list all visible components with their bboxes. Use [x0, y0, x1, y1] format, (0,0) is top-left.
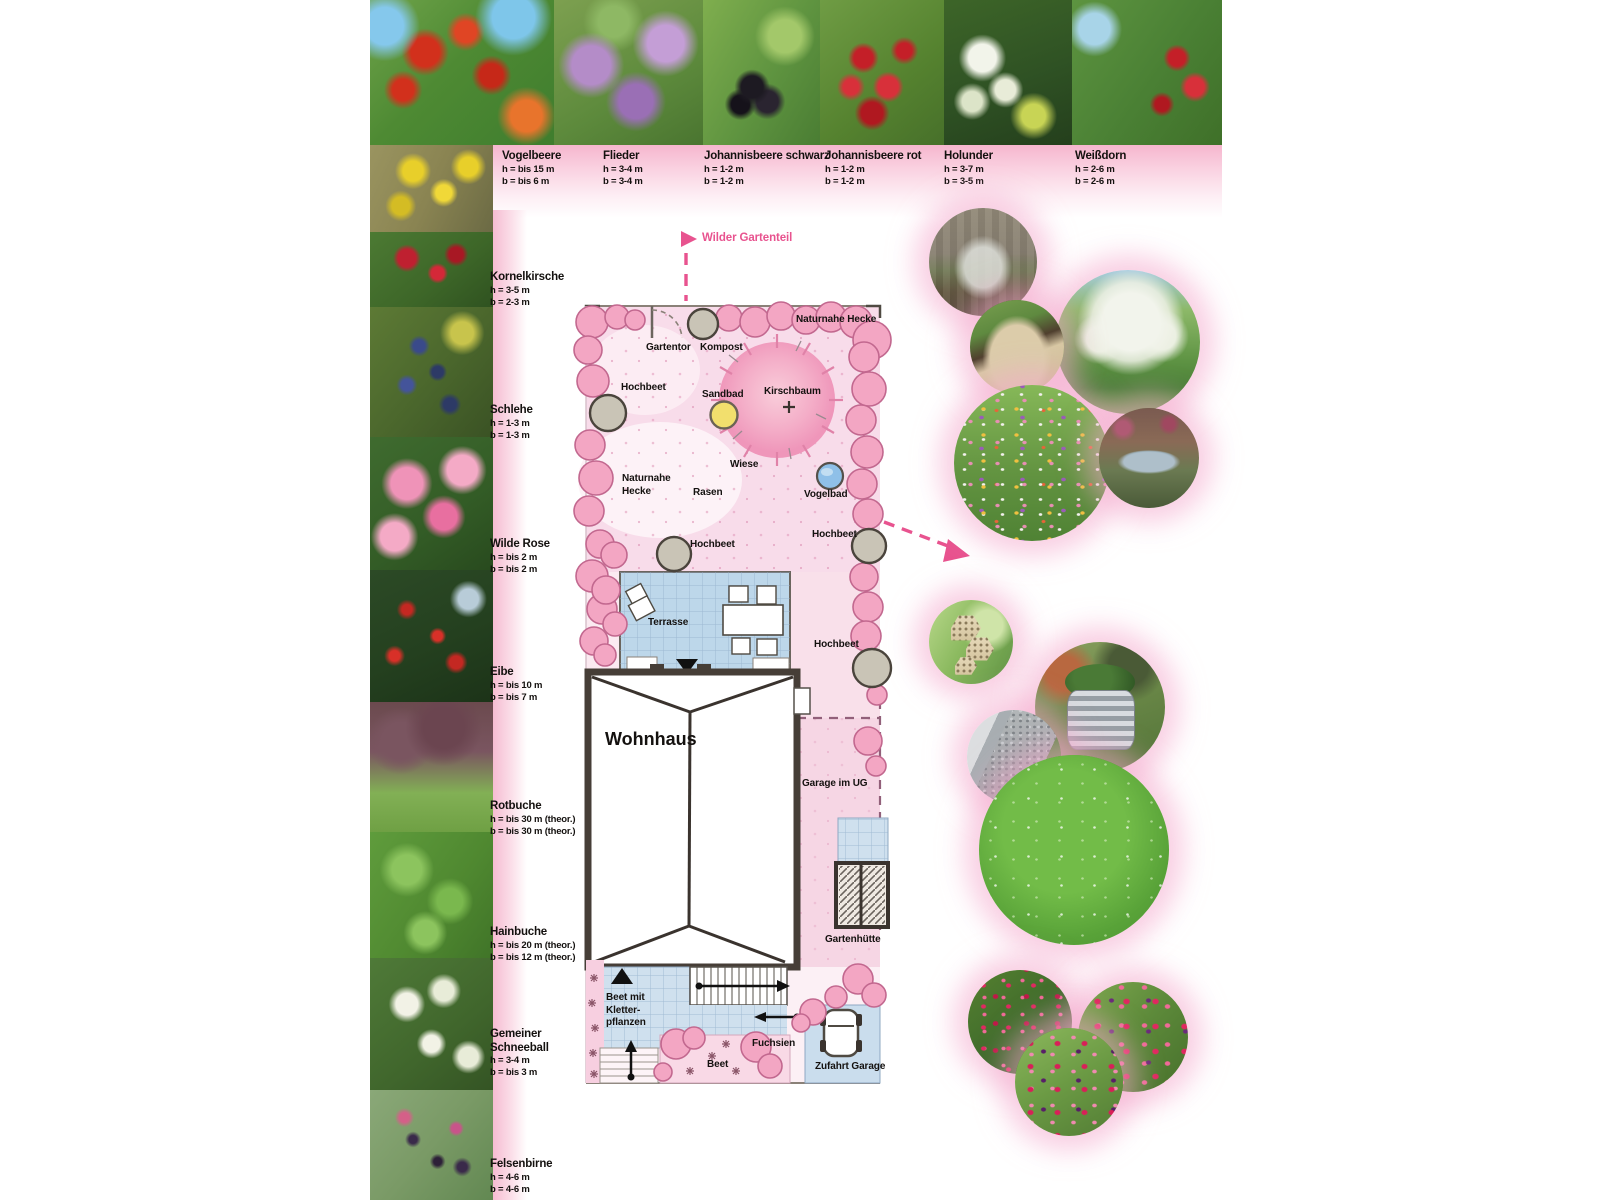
wild-garden-callout-label: Wilder Gartenteil — [702, 231, 792, 245]
photo-circle-blossoming-tree — [1056, 270, 1200, 414]
plan-label-hochbeet-1: Hochbeet — [621, 382, 666, 395]
plan-label-wiese: Wiese — [730, 459, 758, 472]
plan-label-naturnahe-hecke-left: Naturnahe Hecke — [622, 473, 671, 498]
stairs — [690, 967, 790, 1005]
plan-label-gartenhuette: Gartenhütte — [825, 934, 881, 947]
plan-label-kompost: Kompost — [700, 342, 743, 355]
sand-bath — [711, 402, 738, 429]
photo-circle-bird-bath — [1099, 408, 1199, 508]
plan-label-terrasse: Terrasse — [648, 617, 688, 630]
terrace — [620, 572, 790, 674]
plan-label-beet: Beet — [707, 1059, 728, 1072]
bird-bath — [817, 463, 843, 489]
plan-label-hochbeet-2: Hochbeet — [690, 539, 735, 552]
detail-callout-arrow — [884, 522, 970, 562]
wild-garden-arrow — [681, 231, 697, 301]
plan-label-sandbad: Sandbad — [702, 389, 744, 402]
photo-circle-lawn — [979, 755, 1169, 945]
plan-label-garage-im-ug: Garage im UG — [802, 778, 868, 791]
plan-label-beet-kletterpflanzen: Beet mit Kletter- pflanzen — [606, 992, 646, 1030]
garden-guide-page: { "top_row": { "items": [ {"name": "Voge… — [0, 0, 1600, 1200]
plan-label-hochbeet-4: Hochbeet — [814, 639, 859, 652]
garden-plan-drawing — [0, 0, 1600, 1200]
photo-circle-insect-hotel — [929, 600, 1013, 684]
photo-circle-fuchsia-detail — [1015, 1028, 1123, 1136]
plan-label-hochbeet-3: Hochbeet — [812, 529, 857, 542]
plan-label-wohnhaus: Wohnhaus — [605, 728, 697, 751]
plan-label-rasen: Rasen — [693, 487, 723, 500]
plan-label-fuchsien: Fuchsien — [752, 1038, 795, 1051]
garden-hut — [836, 863, 888, 927]
terrace-table — [723, 605, 783, 635]
plan-label-kirschbaum: Kirschbaum — [764, 386, 821, 399]
photo-circle-flower-meadow — [954, 385, 1110, 541]
plan-label-naturnahe-hecke-top: Naturnahe Hecke — [796, 314, 876, 327]
plan-label-gartentor: Gartentor — [646, 342, 691, 355]
compost-circle — [688, 309, 718, 339]
plan-label-zufahrt-garage: Zufahrt Garage — [815, 1061, 885, 1074]
plan-label-vogelbad: Vogelbad — [804, 489, 847, 502]
photo-circle-sand-bath — [970, 300, 1064, 394]
raised-bed-cylinder — [1067, 690, 1135, 750]
house-outline — [588, 664, 810, 967]
car-icon — [824, 1010, 858, 1056]
